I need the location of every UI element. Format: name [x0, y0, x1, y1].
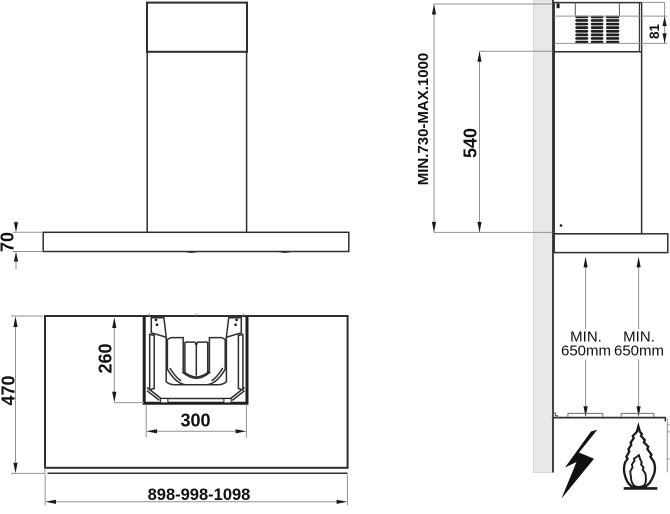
svg-text:260: 260 [96, 343, 116, 373]
svg-text:470: 470 [0, 375, 19, 405]
svg-text:650mm: 650mm [561, 343, 611, 360]
svg-text:898-998-1098: 898-998-1098 [148, 486, 251, 504]
svg-text:81: 81 [647, 24, 662, 40]
svg-text:70: 70 [0, 232, 18, 252]
svg-text:300: 300 [180, 410, 210, 430]
svg-text:540: 540 [461, 128, 481, 158]
svg-text:650mm: 650mm [614, 343, 664, 360]
svg-text:MIN.730-MAX.1000: MIN.730-MAX.1000 [415, 53, 432, 186]
